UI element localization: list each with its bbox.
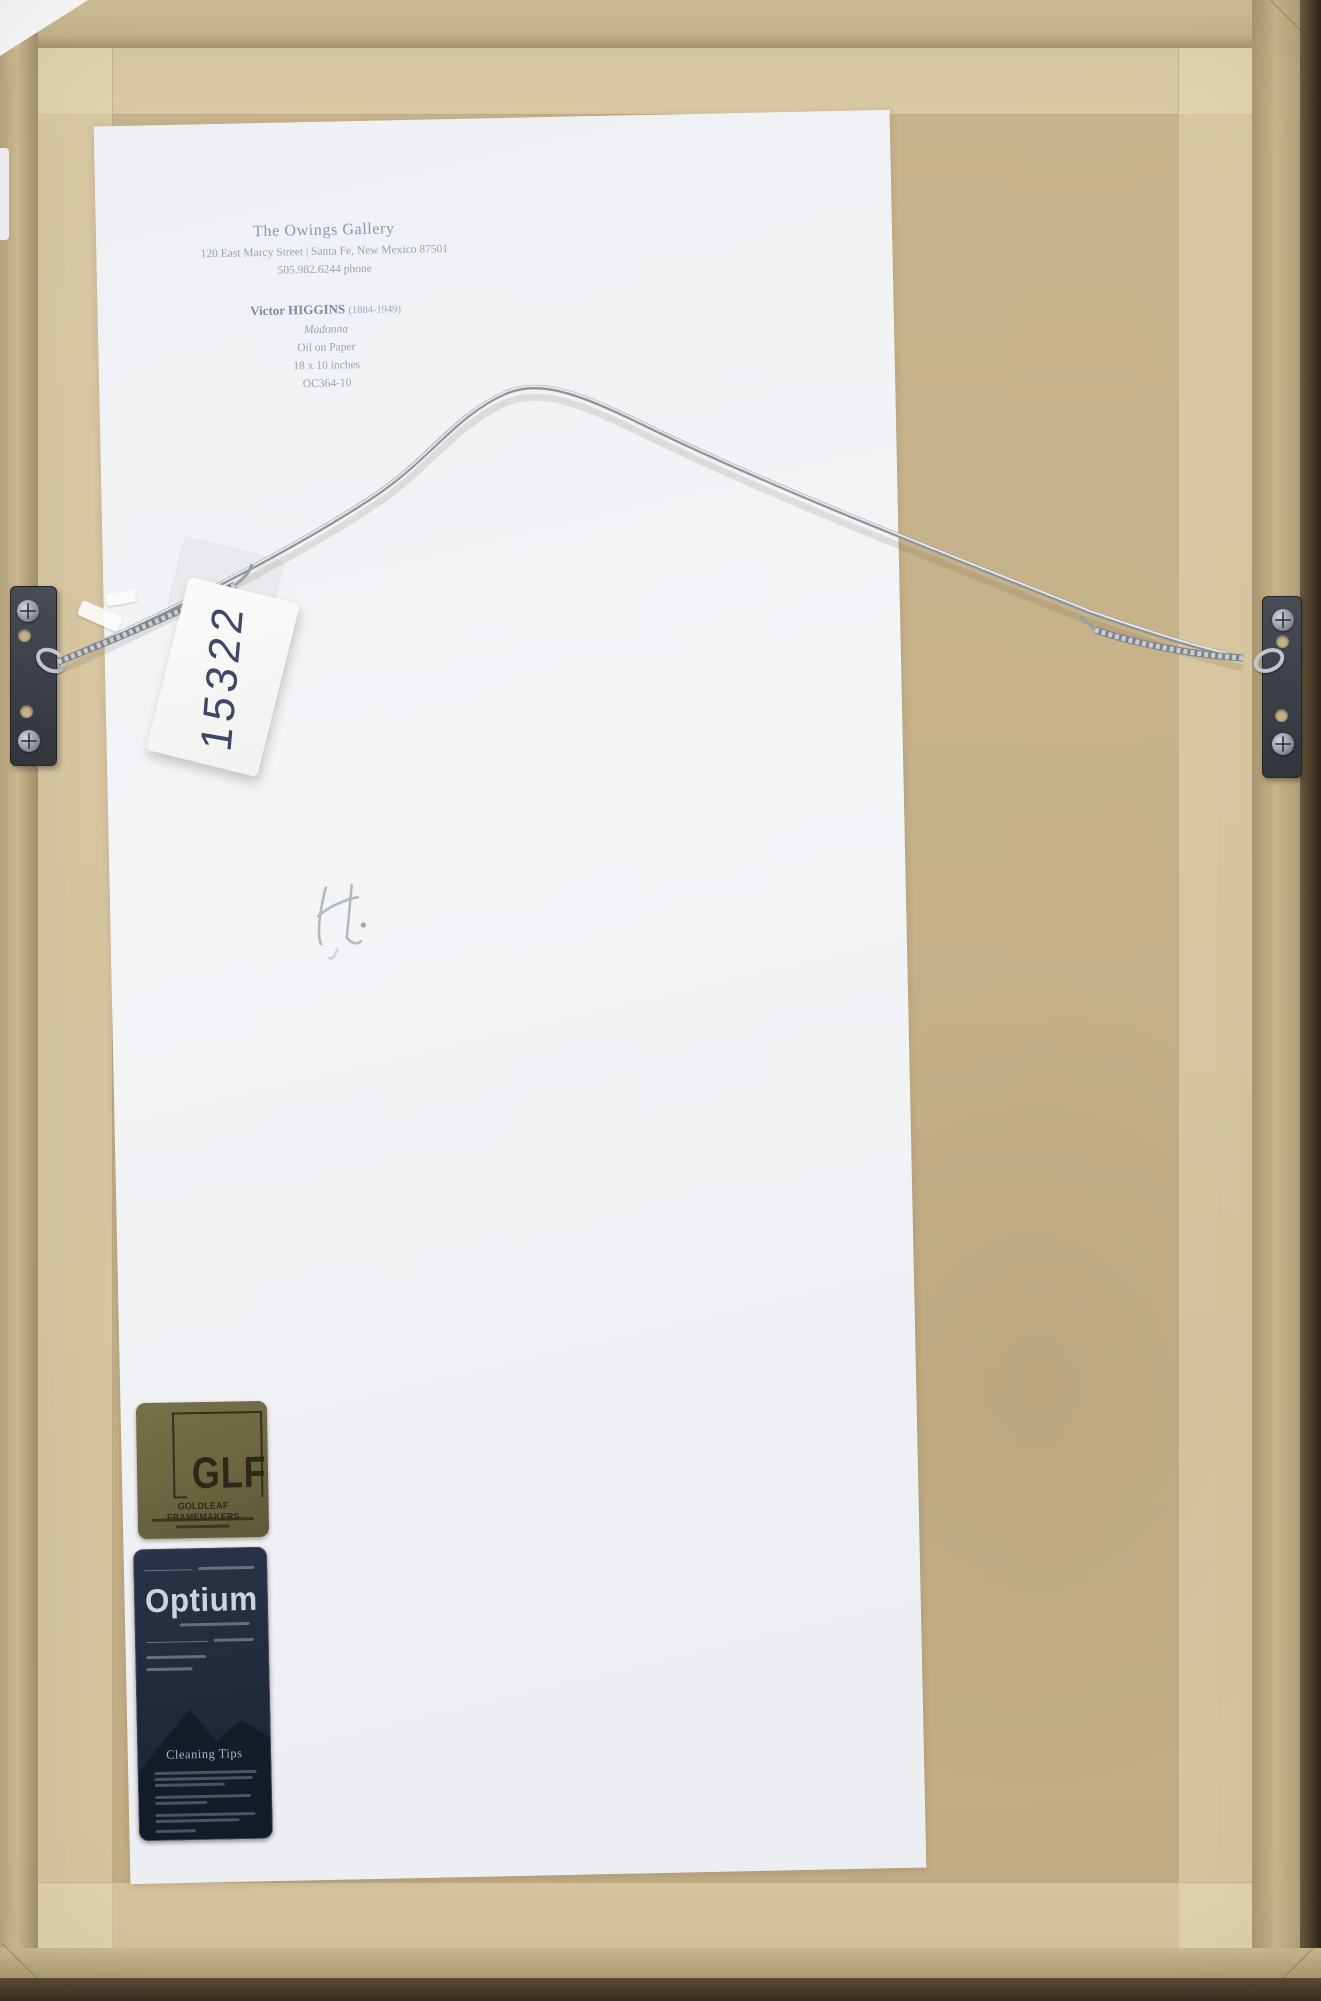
hanging-wire (0, 0, 1321, 2001)
framed-artwork-back-photo: The Owings Gallery 120 East Marcy Street… (0, 0, 1321, 2001)
tag-number: 15322 (192, 599, 254, 755)
photo-background-sliver (0, 148, 9, 240)
